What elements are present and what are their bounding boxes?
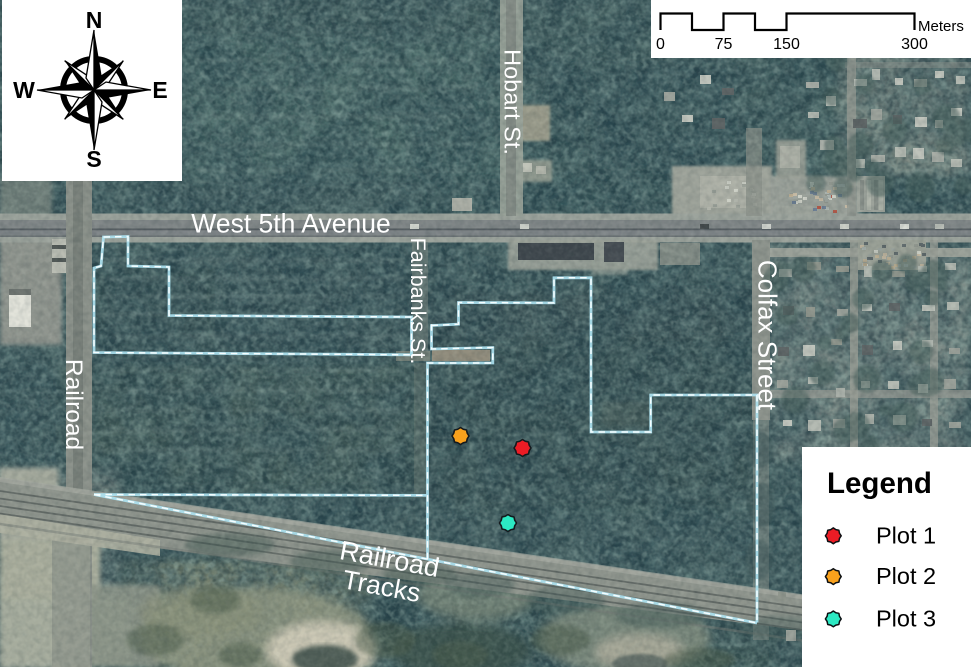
- svg-text:Plot 2: Plot 2: [876, 563, 936, 589]
- svg-text:Railroad: Railroad: [60, 359, 87, 450]
- svg-text:0: 0: [656, 36, 665, 53]
- svg-text:Hobart St.: Hobart St.: [500, 49, 526, 155]
- svg-text:S: S: [86, 146, 101, 172]
- svg-text:300: 300: [901, 36, 928, 53]
- svg-text:Legend: Legend: [827, 467, 932, 500]
- svg-text:Meters: Meters: [918, 18, 964, 35]
- svg-text:75: 75: [715, 36, 733, 53]
- svg-text:Colfax Street: Colfax Street: [753, 260, 783, 411]
- svg-text:Fairbanks St.: Fairbanks St.: [406, 238, 430, 365]
- svg-text:W: W: [13, 77, 35, 103]
- svg-text:Plot 1: Plot 1: [876, 522, 936, 548]
- svg-text:West 5th Avenue: West 5th Avenue: [191, 209, 390, 239]
- svg-text:E: E: [152, 77, 167, 103]
- svg-text:N: N: [86, 7, 103, 33]
- svg-text:Plot 3: Plot 3: [876, 605, 936, 631]
- svg-text:150: 150: [773, 36, 800, 53]
